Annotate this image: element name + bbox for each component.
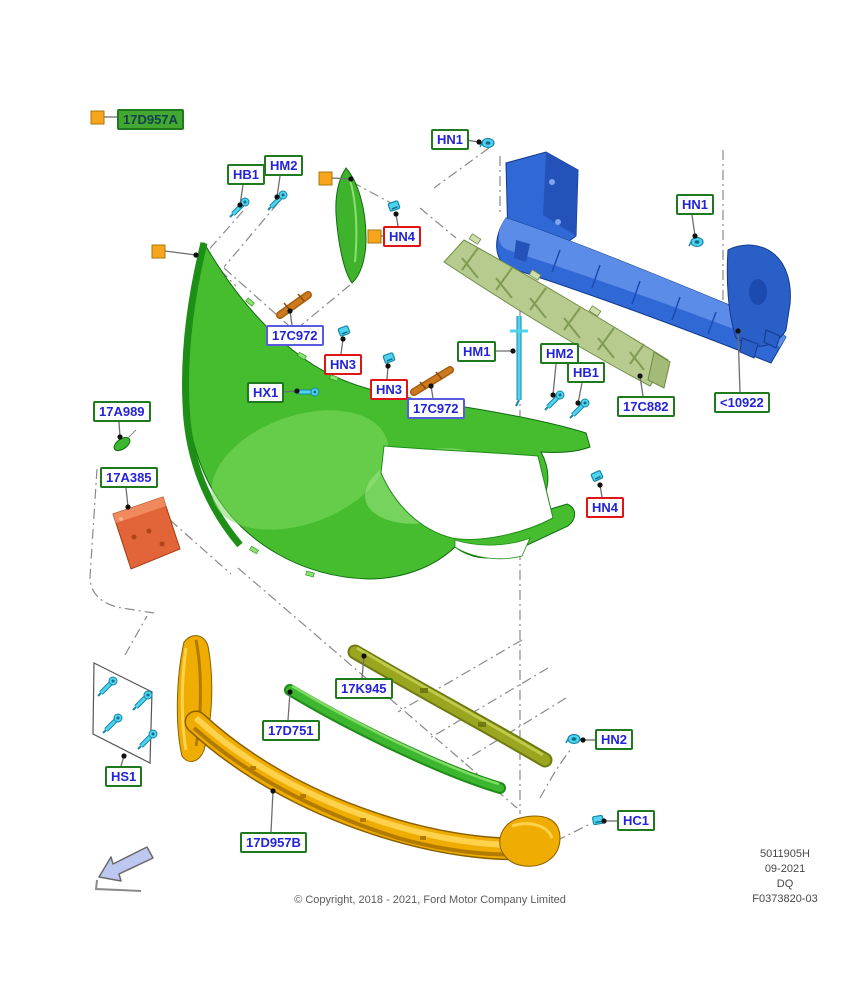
fastener-clip-hn3-left[interactable] bbox=[338, 326, 350, 337]
callout-HM2-12[interactable]: HM2 bbox=[540, 343, 579, 364]
orange-square-marker bbox=[319, 172, 332, 185]
callout-HM2-2[interactable]: HM2 bbox=[264, 155, 303, 176]
callout-HM1-11[interactable]: HM1 bbox=[457, 341, 496, 362]
orange-square-marker bbox=[368, 230, 381, 243]
callout-17D751-20[interactable]: 17D751 bbox=[262, 720, 320, 741]
bracket-17c972-left[interactable] bbox=[280, 294, 308, 315]
direction-arrow bbox=[96, 847, 153, 891]
callout-HN1-3[interactable]: HN1 bbox=[431, 129, 469, 150]
fastener-nut-hn1-right[interactable] bbox=[689, 238, 703, 247]
callout-HB1-13[interactable]: HB1 bbox=[567, 362, 605, 383]
bumper-reinforcement-beam[interactable] bbox=[497, 152, 791, 363]
diagram-artwork bbox=[0, 0, 858, 1000]
callout-17A385-17[interactable]: 17A385 bbox=[100, 467, 158, 488]
callout-HN4-4[interactable]: HN4 bbox=[383, 226, 421, 247]
orange-square-marker bbox=[152, 245, 165, 258]
license-plate-bracket[interactable] bbox=[113, 497, 180, 569]
callout-HN1-5[interactable]: HN1 bbox=[676, 194, 714, 215]
fastener-clip-hn3-right[interactable] bbox=[383, 353, 395, 364]
doc-number: 5011905H bbox=[735, 847, 835, 862]
stabilizer-pin-hm1[interactable] bbox=[510, 316, 528, 406]
doc-figure: F0373820-03 bbox=[735, 892, 835, 907]
callout-HN4-18[interactable]: HN4 bbox=[586, 497, 624, 518]
fastener-nut-hn1-top[interactable] bbox=[480, 139, 494, 148]
callout-17D957A-0[interactable]: 17D957A bbox=[117, 109, 184, 130]
doc-info: 5011905H 09-2021 DQ F0373820-03 bbox=[735, 847, 835, 907]
callout-HN2-23[interactable]: HN2 bbox=[595, 729, 633, 750]
doc-code: DQ bbox=[735, 877, 835, 892]
callout-17C882-14[interactable]: 17C882 bbox=[617, 396, 675, 417]
callout-17D957B-22[interactable]: 17D957B bbox=[240, 832, 307, 853]
callout-17K945-19[interactable]: 17K945 bbox=[335, 678, 393, 699]
callout-HX1-8[interactable]: HX1 bbox=[247, 382, 284, 403]
copyright-text: © Copyright, 2018 - 2021, Ford Motor Com… bbox=[230, 894, 630, 906]
callout-HN3-7[interactable]: HN3 bbox=[324, 354, 362, 375]
valance-panel[interactable] bbox=[177, 636, 560, 867]
plug-17a989[interactable] bbox=[112, 430, 136, 453]
callout-17C972-6[interactable]: 17C972 bbox=[266, 325, 324, 346]
fastener-nut-hn2[interactable] bbox=[566, 735, 580, 744]
callout-HS1-21[interactable]: HS1 bbox=[105, 766, 142, 787]
orange-square-marker bbox=[91, 111, 104, 124]
upper-bracket[interactable] bbox=[336, 168, 366, 283]
parts-diagram-page: 17D957AHB1HM2HN1HN4HN117C972HN3HX1HN317C… bbox=[0, 0, 858, 1000]
screw-kit-box[interactable] bbox=[93, 663, 157, 763]
fastener-clip-hn4-bottom[interactable] bbox=[591, 470, 603, 481]
callout-HN3-9[interactable]: HN3 bbox=[370, 379, 408, 400]
doc-date: 09-2021 bbox=[735, 862, 835, 877]
callout-17A989-16[interactable]: 17A989 bbox=[93, 401, 151, 422]
grille-strip-17d751[interactable] bbox=[290, 686, 500, 788]
callout-10922-15[interactable]: <10922 bbox=[714, 392, 770, 413]
callout-HB1-1[interactable]: HB1 bbox=[227, 164, 265, 185]
callout-17C972-10[interactable]: 17C972 bbox=[407, 398, 465, 419]
callout-HC1-24[interactable]: HC1 bbox=[617, 810, 655, 831]
